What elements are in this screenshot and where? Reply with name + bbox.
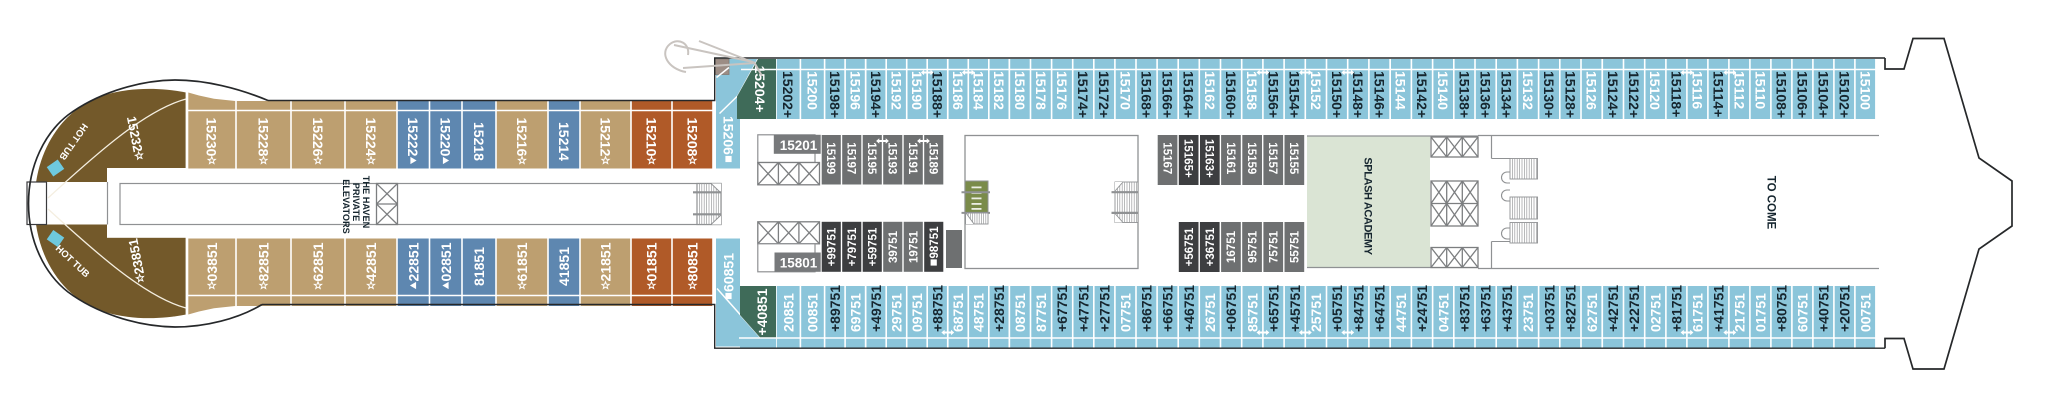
svg-text:15148+: 15148+ <box>1350 71 1366 118</box>
svg-text:29751: 29751 <box>889 293 905 332</box>
svg-text:+64751: +64751 <box>1372 285 1388 332</box>
svg-text:60851: 60851 <box>721 253 737 292</box>
svg-text:21751: 21751 <box>1732 293 1748 332</box>
svg-text:15199: 15199 <box>824 142 836 174</box>
svg-text:00851: 00851 <box>805 293 821 332</box>
svg-text:48751: 48751 <box>971 293 987 332</box>
svg-text:98751: 98751 <box>929 226 941 259</box>
svg-text:15128+: 15128+ <box>1562 71 1578 118</box>
svg-text:07751: 07751 <box>1118 293 1134 332</box>
svg-text:22851: 22851 <box>405 242 421 281</box>
svg-text:PRIVATE: PRIVATE <box>351 183 361 221</box>
svg-text:15184: 15184 <box>971 71 987 110</box>
svg-text:15166+: 15166+ <box>1160 71 1176 118</box>
svg-text:THE HAVEN: THE HAVEN <box>361 176 371 229</box>
svg-text:15172+: 15172+ <box>1096 71 1112 118</box>
svg-text:15180: 15180 <box>1012 71 1028 110</box>
svg-text:15200: 15200 <box>804 71 820 110</box>
svg-text:+42751: +42751 <box>1605 285 1621 332</box>
svg-text:15202+: 15202+ <box>780 71 796 118</box>
svg-text:+06751: +06751 <box>1223 285 1239 332</box>
svg-text:08751: 08751 <box>1012 293 1028 332</box>
svg-text:15226: 15226 <box>310 118 326 157</box>
svg-text:15198+: 15198+ <box>827 71 843 118</box>
svg-text:15120: 15120 <box>1647 71 1663 110</box>
svg-text:23751: 23751 <box>1520 293 1536 332</box>
svg-text:+41751: +41751 <box>1711 285 1727 332</box>
svg-text:15112: 15112 <box>1731 71 1747 109</box>
svg-text:+47751: +47751 <box>1075 285 1091 332</box>
svg-text:15159: 15159 <box>1245 142 1257 174</box>
svg-text:15174+: 15174+ <box>1075 71 1091 118</box>
svg-text:25751: 25751 <box>1308 293 1324 332</box>
svg-text:15124+: 15124+ <box>1605 71 1621 118</box>
svg-text:+24751: +24751 <box>1414 285 1430 332</box>
svg-text:15156+: 15156+ <box>1265 71 1281 118</box>
svg-text:87751: 87751 <box>1033 293 1049 332</box>
svg-text:15102+: 15102+ <box>1836 71 1852 118</box>
svg-text:15192: 15192 <box>888 71 904 110</box>
svg-text:15142+: 15142+ <box>1414 71 1430 118</box>
svg-text:+56751: +56751 <box>1184 227 1196 266</box>
svg-text:85751: 85751 <box>1244 293 1260 332</box>
svg-text:+03751: +03751 <box>1541 285 1557 332</box>
svg-text:+86751: +86751 <box>1139 285 1155 332</box>
svg-text:+40851: +40851 <box>754 288 770 335</box>
svg-text:15214: 15214 <box>556 122 572 161</box>
svg-text:15116: 15116 <box>1689 71 1705 109</box>
svg-text:61851: 61851 <box>514 242 530 281</box>
svg-text:09751: 09751 <box>909 293 925 332</box>
svg-text:+46751: +46751 <box>1181 285 1197 332</box>
svg-text:+05751: +05751 <box>1329 285 1345 332</box>
svg-text:15188+: 15188+ <box>929 71 945 118</box>
svg-text:15126: 15126 <box>1584 71 1600 110</box>
svg-text:42851: 42851 <box>363 242 379 281</box>
svg-text:15197: 15197 <box>845 142 857 174</box>
svg-text:15130+: 15130+ <box>1541 71 1557 118</box>
svg-text:15230: 15230 <box>204 118 220 157</box>
svg-text:26751: 26751 <box>1202 293 1218 332</box>
svg-text:15106+: 15106+ <box>1794 71 1810 118</box>
svg-text:41851: 41851 <box>556 247 572 286</box>
svg-text:55751: 55751 <box>1290 230 1302 263</box>
svg-text:+63751: +63751 <box>1478 285 1494 332</box>
svg-text:15228: 15228 <box>255 118 271 157</box>
svg-text:15224: 15224 <box>363 118 379 157</box>
svg-text:15168+: 15168+ <box>1138 71 1154 118</box>
svg-text:15222: 15222 <box>405 118 421 157</box>
svg-text:+81751: +81751 <box>1669 285 1685 332</box>
svg-text:15161: 15161 <box>1224 142 1236 175</box>
svg-text:+43751: +43751 <box>1499 285 1515 332</box>
svg-text:15170: 15170 <box>1117 71 1133 110</box>
svg-text:95751: 95751 <box>1247 230 1259 263</box>
svg-text:SPLASH ACADEMY: SPLASH ACADEMY <box>1362 157 1374 255</box>
svg-text:15220: 15220 <box>438 118 454 157</box>
svg-text:02751: 02751 <box>1647 293 1663 332</box>
svg-text:15118+: 15118+ <box>1668 71 1684 117</box>
svg-text:15201: 15201 <box>780 138 818 153</box>
svg-text:+80751: +80751 <box>1774 285 1790 332</box>
svg-text:15150+: 15150+ <box>1329 71 1345 118</box>
svg-text:15210: 15210 <box>643 118 659 157</box>
svg-text:60751: 60751 <box>1795 293 1811 332</box>
svg-text:+89751: +89751 <box>827 285 843 332</box>
svg-text:15114+: 15114+ <box>1710 71 1726 117</box>
svg-text:68751: 68751 <box>950 293 966 332</box>
svg-text:15195: 15195 <box>865 142 877 175</box>
svg-text:01851: 01851 <box>644 242 660 281</box>
svg-text:15164+: 15164+ <box>1181 71 1197 118</box>
svg-text:15100: 15100 <box>1857 71 1873 110</box>
svg-text:+36751: +36751 <box>1205 227 1217 266</box>
svg-text:04751: 04751 <box>1435 293 1451 332</box>
svg-text:+59751: +59751 <box>867 227 879 266</box>
svg-text:15801: 15801 <box>780 256 818 271</box>
svg-text:15196: 15196 <box>847 71 863 110</box>
svg-text:15152: 15152 <box>1308 71 1324 110</box>
svg-text:15132: 15132 <box>1520 71 1536 110</box>
svg-text:+22751: +22751 <box>1626 285 1642 332</box>
svg-text:15191: 15191 <box>906 142 918 175</box>
svg-text:+67751: +67751 <box>1054 285 1070 332</box>
svg-text:15189: 15189 <box>927 142 939 174</box>
svg-text:15108+: 15108+ <box>1773 71 1789 118</box>
svg-text:15162: 15162 <box>1202 71 1218 110</box>
svg-text:15122+: 15122+ <box>1626 71 1642 118</box>
svg-text:15194+: 15194+ <box>868 71 884 118</box>
svg-text:+79751: +79751 <box>847 227 859 266</box>
svg-text:75751: 75751 <box>1268 230 1280 263</box>
svg-text:15208: 15208 <box>684 118 700 157</box>
svg-text:15157: 15157 <box>1266 142 1278 174</box>
svg-text:15134+: 15134+ <box>1499 71 1515 118</box>
svg-text:15193: 15193 <box>886 142 898 174</box>
svg-text:+49751: +49751 <box>868 285 884 332</box>
svg-text:+65751: +65751 <box>1266 285 1282 332</box>
svg-text:15158: 15158 <box>1244 71 1260 110</box>
svg-text:15110: 15110 <box>1752 71 1768 109</box>
svg-text:20851: 20851 <box>780 293 796 332</box>
svg-text:+99751: +99751 <box>826 227 838 266</box>
svg-text:+20751: +20751 <box>1837 285 1853 332</box>
svg-text:+40751: +40751 <box>1816 285 1832 332</box>
svg-text:44751: 44751 <box>1393 293 1409 332</box>
svg-text:15178: 15178 <box>1033 71 1049 110</box>
svg-text:16751: 16751 <box>1226 230 1238 263</box>
svg-text:39751: 39751 <box>888 230 900 263</box>
svg-text:15176: 15176 <box>1054 71 1070 110</box>
svg-text:15136+: 15136+ <box>1478 71 1494 118</box>
svg-text:21851: 21851 <box>598 242 614 281</box>
svg-text:15163+: 15163+ <box>1203 139 1215 178</box>
svg-text:15182: 15182 <box>991 71 1007 110</box>
svg-text:81851: 81851 <box>471 247 487 286</box>
svg-text:ELEVATORS: ELEVATORS <box>341 179 351 234</box>
svg-text:03851: 03851 <box>204 242 220 281</box>
svg-text:15165+: 15165+ <box>1182 139 1194 178</box>
svg-text:+82751: +82751 <box>1563 285 1579 332</box>
svg-text:15186: 15186 <box>950 71 966 110</box>
svg-text:15167: 15167 <box>1160 142 1172 174</box>
svg-text:02851: 02851 <box>438 242 454 281</box>
svg-text:15138+: 15138+ <box>1456 71 1472 118</box>
svg-text:15216: 15216 <box>514 118 530 157</box>
svg-text:15155: 15155 <box>1287 142 1299 175</box>
svg-text:80851: 80851 <box>685 242 701 281</box>
svg-text:+84751: +84751 <box>1351 285 1367 332</box>
svg-text:15218: 15218 <box>471 122 487 161</box>
svg-text:69751: 69751 <box>848 293 864 332</box>
svg-text:19751: 19751 <box>908 230 920 263</box>
svg-text:62851: 62851 <box>310 242 326 281</box>
svg-text:TO COME: TO COME <box>1764 176 1776 230</box>
svg-text:15144: 15144 <box>1393 71 1409 110</box>
svg-text:+27751: +27751 <box>1096 285 1112 332</box>
svg-text:15146+: 15146+ <box>1371 71 1387 118</box>
svg-text:01751: 01751 <box>1753 293 1769 332</box>
svg-text:61751: 61751 <box>1690 293 1706 332</box>
svg-text:15190: 15190 <box>909 71 925 110</box>
svg-text:+45751: +45751 <box>1287 285 1303 332</box>
svg-text:82851: 82851 <box>256 242 272 281</box>
svg-text:15154+: 15154+ <box>1287 71 1303 118</box>
svg-text:15212: 15212 <box>597 118 613 157</box>
svg-text:15140: 15140 <box>1435 71 1451 110</box>
svg-text:+83751: +83751 <box>1457 285 1473 332</box>
svg-text:15206: 15206 <box>720 116 736 155</box>
svg-text:62751: 62751 <box>1584 293 1600 332</box>
svg-text:15104+: 15104+ <box>1815 71 1831 118</box>
svg-text:+66751: +66751 <box>1160 285 1176 332</box>
svg-text:+88751: +88751 <box>930 285 946 332</box>
svg-text:15160+: 15160+ <box>1223 71 1239 118</box>
svg-text:00751: 00751 <box>1858 293 1874 332</box>
svg-text:+28751: +28751 <box>991 285 1007 332</box>
